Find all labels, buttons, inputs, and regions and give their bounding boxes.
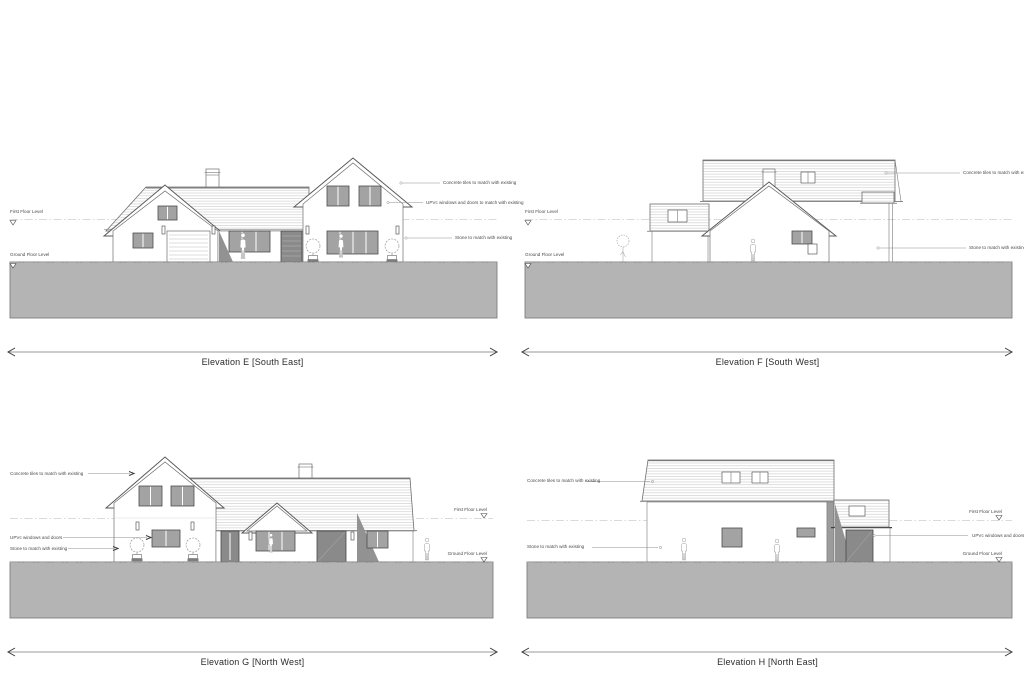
annotation-concrete-tiles-h: Concrete tiles to match with existing: [527, 478, 600, 483]
extent-arrow: [522, 348, 1012, 356]
annotation-stone-h: Stone to match with existing: [527, 544, 584, 549]
meter-box: [808, 244, 817, 254]
wing-glazing: [256, 531, 295, 551]
level-marker: [525, 221, 531, 226]
shrub: [617, 235, 629, 263]
left-wing: [647, 204, 712, 262]
elevation-h-drawing: [522, 460, 1012, 656]
annotation-stone-g: Stone to match with existing: [10, 546, 67, 551]
level-label-ground-floor-g: Ground Floor Level: [437, 551, 487, 556]
panel-title-h: Elevation H [North East]: [515, 657, 1020, 667]
level-label-first-floor-g: First Floor Level: [437, 507, 487, 512]
entrance-door: [281, 231, 302, 262]
extent-arrow: [522, 648, 1012, 656]
low-window: [797, 528, 815, 537]
right-canopy: [860, 192, 897, 262]
level-marker: [481, 514, 487, 519]
level-label-ground-floor-f: Ground Floor Level: [525, 252, 564, 257]
panel-title-e: Elevation E [South East]: [0, 357, 505, 367]
panel-title-g: Elevation G [North West]: [0, 657, 505, 667]
annotation-concrete-tiles-e: Concrete tiles to match with existing: [443, 180, 516, 185]
annotation-stone-e: Stone to match with existing: [455, 235, 512, 240]
level-label-first-floor-f: First Floor Level: [525, 209, 558, 214]
annotation-upvc-h: UPVc windows and doors: [972, 533, 1024, 538]
garage-door: [162, 226, 215, 262]
elevation-e-drawing: [8, 158, 497, 356]
ground: [525, 262, 1012, 318]
annotation-concrete-tiles-f: Concrete tiles to match with existing: [963, 170, 1024, 175]
level-marker: [481, 558, 487, 563]
person-figure: [424, 538, 429, 560]
annotation-stone-f: Stone to match with existing: [969, 245, 1024, 250]
elevations-sheet: First Floor Level Ground Floor Level Con…: [0, 0, 1024, 695]
link-section: [218, 231, 302, 262]
annotation-upvc-g: UPVc windows and doors: [10, 535, 62, 540]
ground: [527, 562, 1012, 618]
extent-arrow: [8, 648, 497, 656]
level-label-ground-floor-h: Ground Floor Level: [952, 551, 1002, 556]
extent-arrow: [8, 348, 497, 356]
annotation-concrete-tiles-g: Concrete tiles to match with existing: [10, 471, 83, 476]
link-glazing: [229, 231, 270, 252]
annotation-upvc-e: UPVc windows and doors to match with exi…: [426, 200, 524, 205]
elevation-f-drawing: [522, 160, 1012, 356]
level-marker: [10, 221, 16, 226]
ground: [10, 262, 497, 318]
ground: [10, 562, 493, 618]
level-label-first-floor-e: First Floor Level: [10, 209, 43, 214]
level-label-first-floor-h: First Floor Level: [952, 509, 1002, 514]
annex-window: [849, 506, 865, 516]
square-window: [722, 528, 742, 547]
level-marker: [996, 558, 1002, 563]
elevations-line-art: [0, 0, 1024, 695]
left-gable: [106, 457, 224, 562]
level-label-ground-floor-e: Ground Floor Level: [10, 252, 49, 257]
panel-title-f: Elevation F [South West]: [515, 357, 1020, 367]
level-marker: [996, 516, 1002, 521]
annex: [831, 500, 892, 562]
elevation-g-drawing: [8, 457, 497, 656]
corner-shadow: [827, 502, 834, 562]
